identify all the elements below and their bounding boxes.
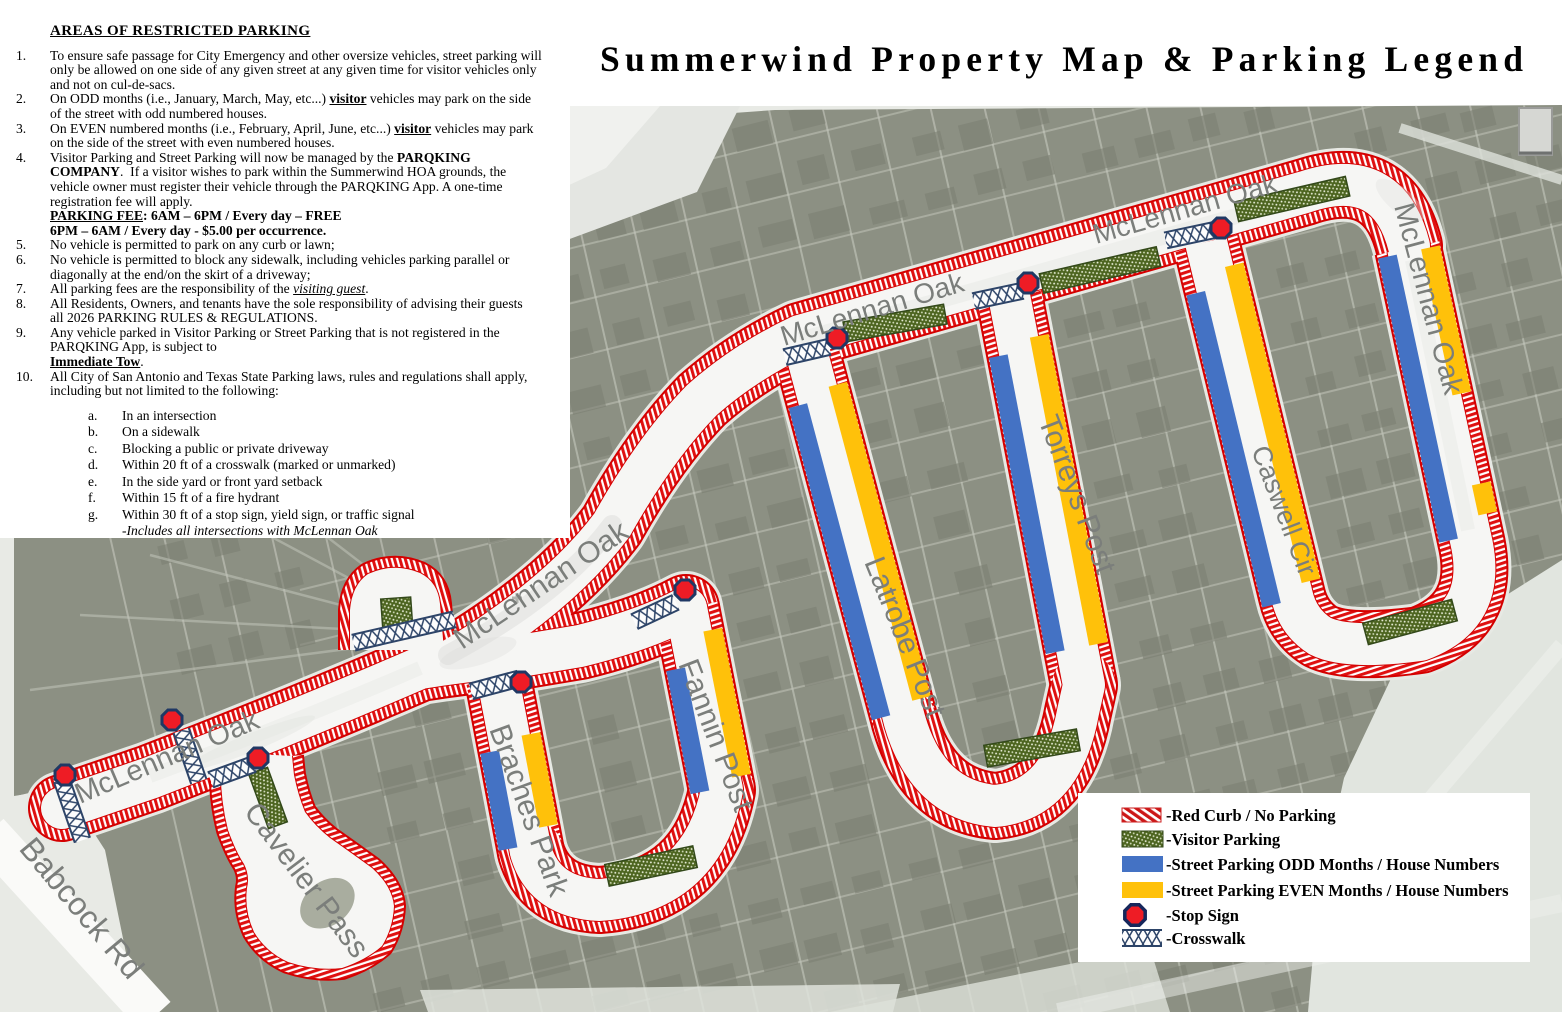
svg-text:-Crosswalk: -Crosswalk (1166, 929, 1246, 948)
svg-text:-Visitor Parking: -Visitor Parking (1166, 830, 1281, 849)
svg-text:-Street Parking ODD Months / H: -Street Parking ODD Months / House Numbe… (1166, 855, 1500, 874)
svg-text:-Street Parking EVEN Months /: -Street Parking EVEN Months / House Numb… (1166, 881, 1509, 900)
svg-text:-Red Curb / No Parking: -Red Curb / No Parking (1166, 806, 1336, 825)
svg-text:-Stop Sign: -Stop Sign (1166, 906, 1239, 925)
